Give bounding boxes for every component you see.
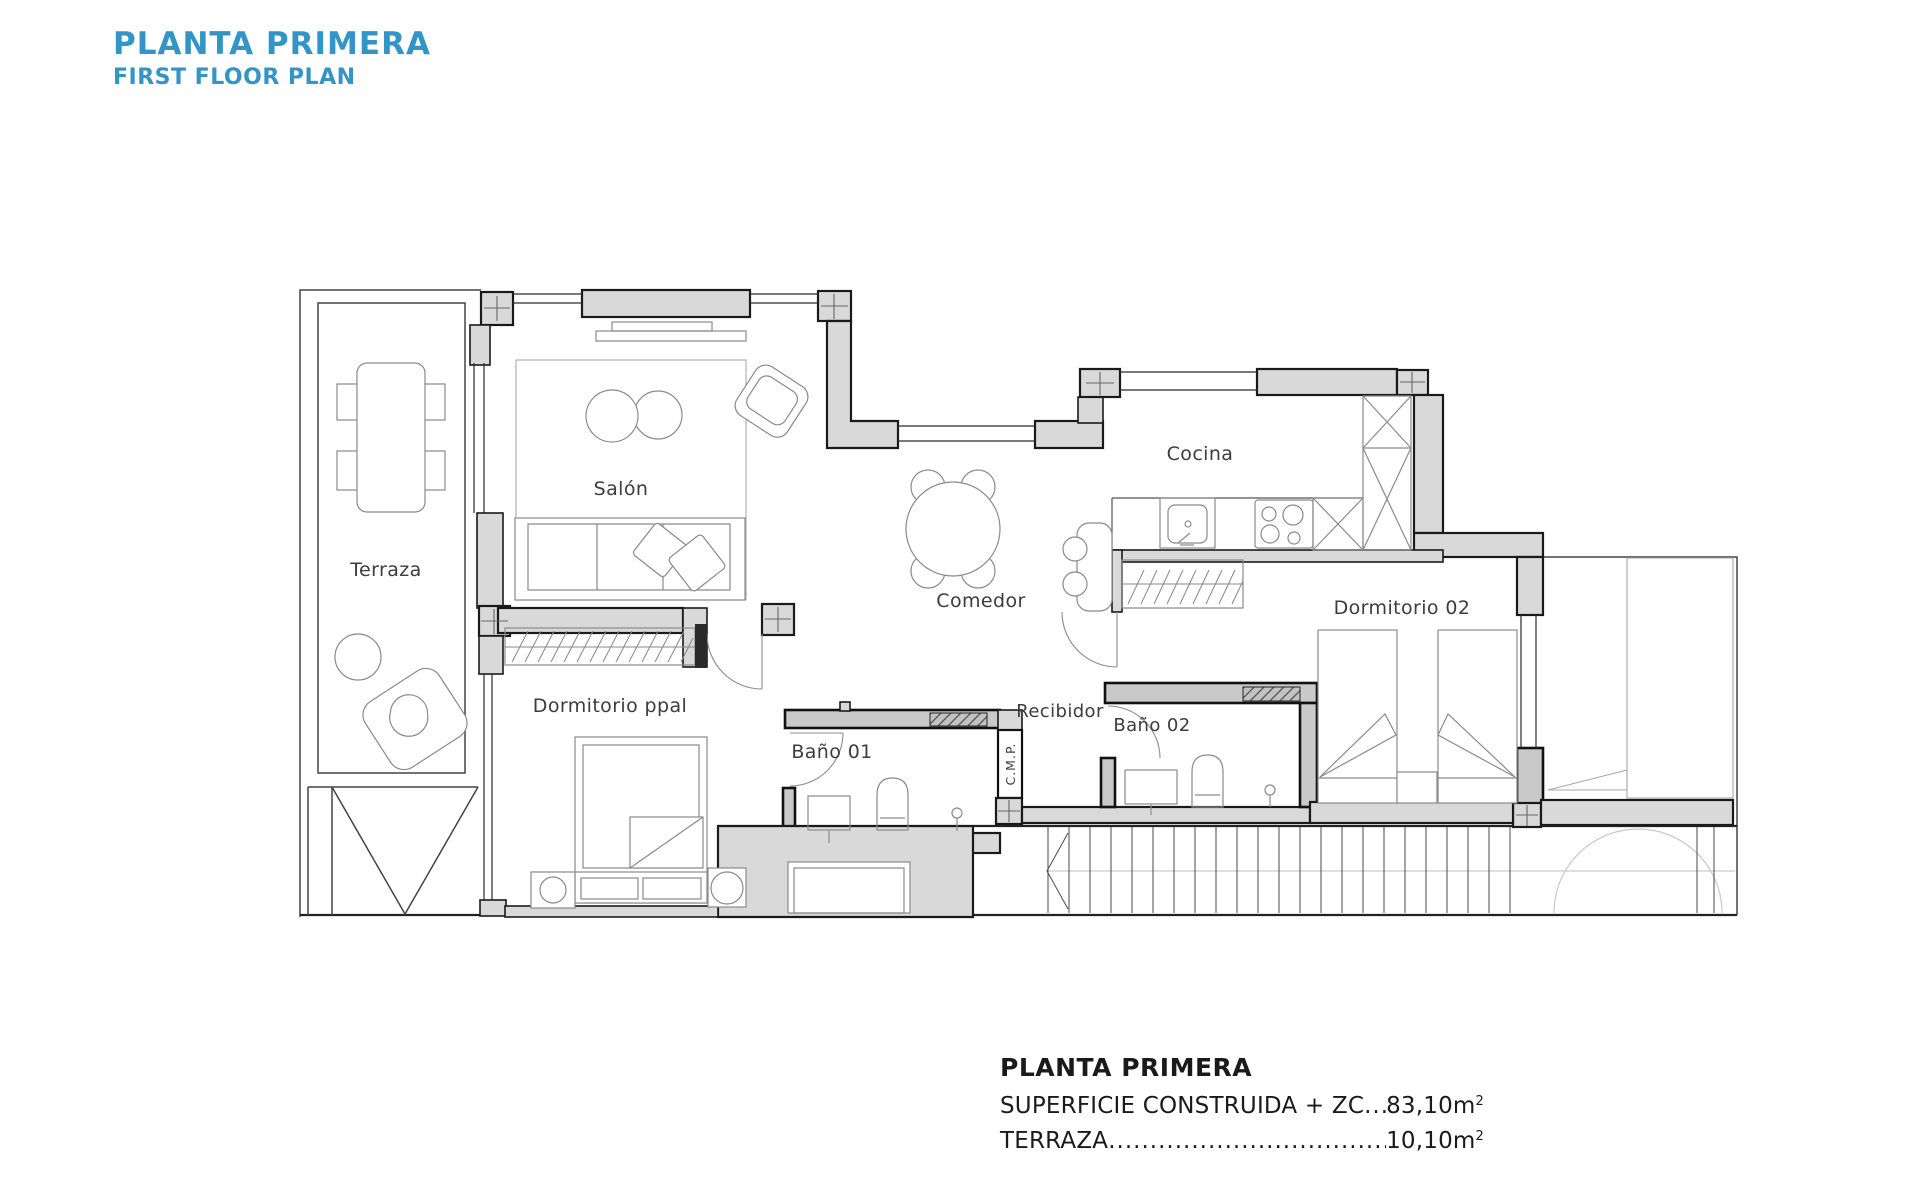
room-label-recibidor: Recibidor <box>1016 701 1104 722</box>
toilet <box>1192 755 1223 807</box>
room-label-dormitorio02: Dormitorio 02 <box>1334 597 1471 619</box>
nightstand <box>1397 772 1437 803</box>
double-bed <box>575 737 707 903</box>
door-master-bedroom <box>707 634 762 689</box>
dining-furniture <box>906 470 1000 588</box>
master-bedroom-furniture <box>505 624 746 908</box>
summary-label: SUPERFICIE CONSTRUIDA + ZC <box>1000 1089 1364 1124</box>
vent-window <box>1243 687 1300 701</box>
leader-dots: ........................................… <box>1108 1124 1386 1159</box>
dining-table <box>906 482 1000 576</box>
summary-value: 10,10m <box>1386 1124 1475 1159</box>
summary-row-built-area: SUPERFICIE CONSTRUIDA + ZC..............… <box>1000 1089 1484 1124</box>
window-sill <box>582 290 750 317</box>
living-room-furniture <box>515 322 812 600</box>
cabinet-x <box>1313 498 1363 550</box>
summary-row-terrace-area: TERRAZA.................................… <box>1000 1124 1484 1159</box>
vent-window <box>930 713 987 726</box>
room-label-bano02: Baño 02 <box>1113 715 1190 736</box>
room-label-salon: Salón <box>594 478 649 500</box>
single-bed <box>1318 630 1397 803</box>
outdoor-table <box>357 363 425 512</box>
room-label-dormitorio-ppal: Dormitorio ppal <box>533 695 687 717</box>
tv <box>612 322 712 331</box>
room-label-cocina: Cocina <box>1167 443 1234 465</box>
tall-cabinet-x <box>1363 396 1411 550</box>
floor-plan: Terraza Salón Comedor Cocina Dormitorio … <box>0 0 1920 1200</box>
lower-terrace <box>788 862 910 913</box>
armchair <box>731 361 813 442</box>
neighbor-bed <box>1627 558 1733 798</box>
toilet <box>877 778 908 830</box>
room-label-bano01: Baño 01 <box>791 741 872 763</box>
room-label-cmp: C.M.P. <box>1003 742 1018 785</box>
summary-title: PLANTA PRIMERA <box>1000 1053 1484 1082</box>
stool <box>1063 537 1087 561</box>
door-bedroom02 <box>1062 612 1117 667</box>
nightstand <box>708 868 746 907</box>
page: PLANTA PRIMERA FIRST FLOOR PLAN <box>0 0 1920 1200</box>
single-bed <box>1438 630 1517 803</box>
summary-label: TERRAZA <box>1000 1124 1108 1159</box>
kitchen-sink <box>1160 498 1215 548</box>
summary-value: 83,10m <box>1386 1089 1475 1124</box>
counter-return <box>1077 523 1112 611</box>
washbasin <box>1125 770 1177 804</box>
side-table <box>634 391 682 439</box>
lounge-chair <box>357 662 473 775</box>
tv-unit <box>596 331 746 341</box>
stool <box>1063 572 1087 596</box>
area-summary: PLANTA PRIMERA SUPERFICIE CONSTRUIDA + Z… <box>1000 1053 1484 1159</box>
cooktop <box>1255 500 1313 548</box>
sofa <box>515 518 745 600</box>
room-label-comedor: Comedor <box>936 590 1025 612</box>
doors <box>707 612 1160 786</box>
neighbor-bed-fold <box>1548 770 1627 790</box>
shower-tap <box>952 808 962 818</box>
room-label-terraza: Terraza <box>349 559 421 581</box>
plant <box>335 634 381 680</box>
bedroom02-wardrobe <box>1122 560 1243 608</box>
leader-dots: ........................................… <box>1364 1089 1386 1124</box>
shower-tap <box>1265 785 1275 795</box>
staircase <box>973 826 1737 913</box>
side-table <box>586 390 638 442</box>
